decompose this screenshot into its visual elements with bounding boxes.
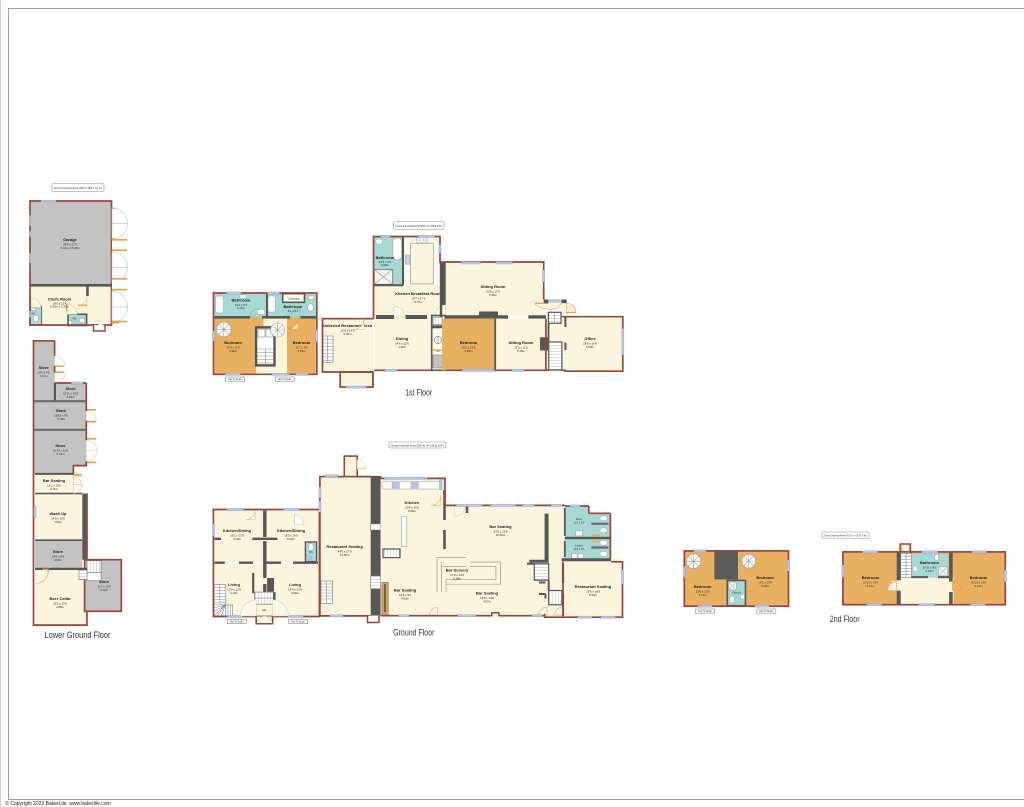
svg-text:13.56m: 13.56m (340, 553, 350, 557)
svg-text:1st Floor: 1st Floor (405, 388, 432, 398)
svg-text:5.18m: 5.18m (517, 349, 526, 353)
svg-text:5.14m: 5.14m (56, 452, 65, 456)
svg-text:5.14m: 5.14m (866, 584, 875, 588)
svg-text:Store: Store (65, 386, 76, 391)
svg-text:2nd Floor: 2nd Floor (830, 614, 860, 624)
svg-text:Beer Cellar: Beer Cellar (49, 596, 71, 601)
svg-text:4.90m: 4.90m (233, 537, 242, 541)
svg-text:Sitting Room: Sitting Room (509, 340, 534, 345)
svg-text:Ground Floor: Ground Floor (393, 627, 434, 637)
svg-text:3.33m: 3.33m (925, 569, 934, 573)
svg-text:Gross Internal Area 335.46 m²: Gross Internal Area 335.46 m² (3611.0 ft… (391, 443, 444, 447)
svg-text:Dining: Dining (396, 336, 409, 341)
svg-text:Gross Internal Area 299.85 m²: Gross Internal Area 299.85 m² (3228.0 ft… (395, 224, 442, 228)
svg-text:4.88m: 4.88m (56, 605, 65, 609)
svg-text:Not To Scale: Not To Scale (230, 620, 244, 623)
svg-text:Living: Living (228, 582, 240, 587)
svg-text:Not To Scale: Not To Scale (278, 378, 292, 381)
svg-text:11'6 x 5'0: 11'6 x 5'0 (574, 547, 585, 551)
svg-text:Mens: Mens (576, 517, 583, 521)
svg-text:4.42m: 4.42m (398, 345, 407, 349)
svg-text:Ladies: Ladies (575, 543, 583, 547)
svg-text:Gross Internal Area 76.87 m² (: Gross Internal Area 76.87 m² (827.0 ft²) (824, 534, 867, 538)
svg-text:Kitchen Breakfast Room: Kitchen Breakfast Room (395, 291, 442, 296)
svg-text:5.94m: 5.94m (589, 593, 598, 597)
svg-text:4.42m: 4.42m (229, 349, 238, 353)
svg-text:WC: WC (72, 317, 76, 321)
svg-text:Restaurant Seating: Restaurant Seating (575, 584, 612, 589)
svg-text:Office: Office (584, 336, 596, 341)
svg-text:6.30m: 6.30m (489, 293, 498, 297)
svg-text:5.14m: 5.14m (974, 584, 983, 588)
svg-text:4.29m: 4.29m (761, 584, 770, 588)
svg-text:4.93m: 4.93m (464, 349, 473, 353)
svg-text:Galleried Restaurant Area: Galleried Restaurant Area (323, 323, 373, 328)
svg-text:4.11m: 4.11m (699, 593, 707, 597)
svg-text:Cupboard: Cupboard (288, 297, 300, 301)
svg-text:5.14m: 5.14m (57, 417, 66, 421)
svg-text:Living: Living (289, 582, 301, 587)
svg-text:4.50m: 4.50m (401, 597, 410, 601)
svg-text:5.99m: 5.99m (408, 509, 417, 513)
svg-text:Bar Seating: Bar Seating (394, 588, 417, 593)
svg-text:Not To Scale: Not To Scale (760, 610, 774, 613)
svg-text:4.57m: 4.57m (483, 600, 492, 604)
svg-text:WC: WC (309, 550, 313, 554)
svg-text:Bedroom: Bedroom (970, 575, 988, 580)
svg-text:Store: Store (99, 579, 110, 584)
svg-text:6.30m: 6.30m (343, 332, 352, 336)
svg-text:3.53m: 3.53m (297, 349, 306, 353)
svg-text:Hall: Hall (262, 608, 267, 612)
svg-text:6'1 x 6'1: 6'1 x 6'1 (288, 309, 299, 313)
svg-text:5.97m: 5.97m (414, 300, 423, 304)
svg-text:Kitchen: Kitchen (405, 500, 420, 505)
svg-text:3.71m: 3.71m (50, 487, 59, 491)
svg-text:Store: Store (55, 443, 66, 448)
svg-text:© Copyright 2022 BakerLile ww: © Copyright 2022 BakerLile www.bakerlile… (5, 800, 110, 807)
svg-text:Ensuite: Ensuite (732, 591, 741, 595)
svg-text:Kitchen/Dining: Kitchen/Dining (223, 528, 252, 533)
svg-text:Wash Up: Wash Up (50, 511, 68, 516)
svg-text:Lower Ground Floor: Lower Ground Floor (45, 630, 111, 640)
svg-text:Bar Servery: Bar Servery (446, 568, 469, 573)
svg-text:Bathroom: Bathroom (920, 560, 939, 565)
svg-text:Sitting Room: Sitting Room (481, 284, 506, 289)
svg-text:Bar Seating: Bar Seating (43, 478, 66, 483)
svg-text:Gross Internal Area 966 ft² (8: Gross Internal Area 966 ft² (89.7 sq m) (54, 186, 102, 190)
svg-text:3.10m: 3.10m (237, 306, 246, 310)
svg-text:4.50m: 4.50m (291, 591, 300, 595)
svg-text:5.69m: 5.69m (586, 345, 595, 349)
svg-text:3.40m: 3.40m (100, 588, 109, 592)
svg-text:Bedroom: Bedroom (694, 584, 712, 589)
svg-text:10.06m: 10.06m (496, 533, 506, 537)
svg-text:Store: Store (38, 365, 49, 370)
svg-text:5.00m: 5.00m (287, 537, 296, 541)
svg-text:Not To Scale: Not To Scale (228, 378, 242, 381)
svg-text:5.18m: 5.18m (453, 577, 462, 581)
svg-text:Store: Store (56, 408, 67, 413)
svg-text:Bedroom: Bedroom (293, 340, 311, 345)
svg-text:Kitchen/Dining: Kitchen/Dining (277, 528, 306, 533)
svg-text:4.50m: 4.50m (54, 558, 63, 562)
svg-text:Bedroom: Bedroom (460, 340, 478, 345)
svg-text:Bar Seating: Bar Seating (476, 591, 499, 596)
svg-text:Restaurant Seating: Restaurant Seating (326, 544, 363, 549)
svg-text:Bedroom: Bedroom (862, 575, 880, 580)
svg-text:11'6 x 6'9: 11'6 x 6'9 (574, 520, 585, 524)
svg-text:4.19m: 4.19m (230, 591, 239, 595)
svg-text:Not To Scale: Not To Scale (698, 610, 712, 613)
svg-text:Store: Store (53, 549, 64, 554)
svg-text:4.50m: 4.50m (54, 520, 63, 524)
svg-text:Bedroom: Bedroom (224, 340, 242, 345)
svg-text:Garage: Garage (63, 237, 78, 242)
svg-text:4.31m: 4.31m (39, 374, 48, 378)
svg-text:Bedroom: Bedroom (756, 575, 774, 580)
svg-text:Bar Seating: Bar Seating (489, 524, 512, 529)
svg-text:8.94m x 8.29m: 8.94m x 8.29m (60, 246, 80, 250)
svg-text:Bathroom: Bathroom (232, 298, 251, 303)
svg-text:3.08m: 3.08m (381, 263, 390, 267)
svg-text:3.34m: 3.34m (66, 395, 75, 399)
svg-text:Not To Scale: Not To Scale (291, 620, 305, 623)
svg-text:5.50m x 3.77m: 5.50m x 3.77m (50, 305, 70, 309)
